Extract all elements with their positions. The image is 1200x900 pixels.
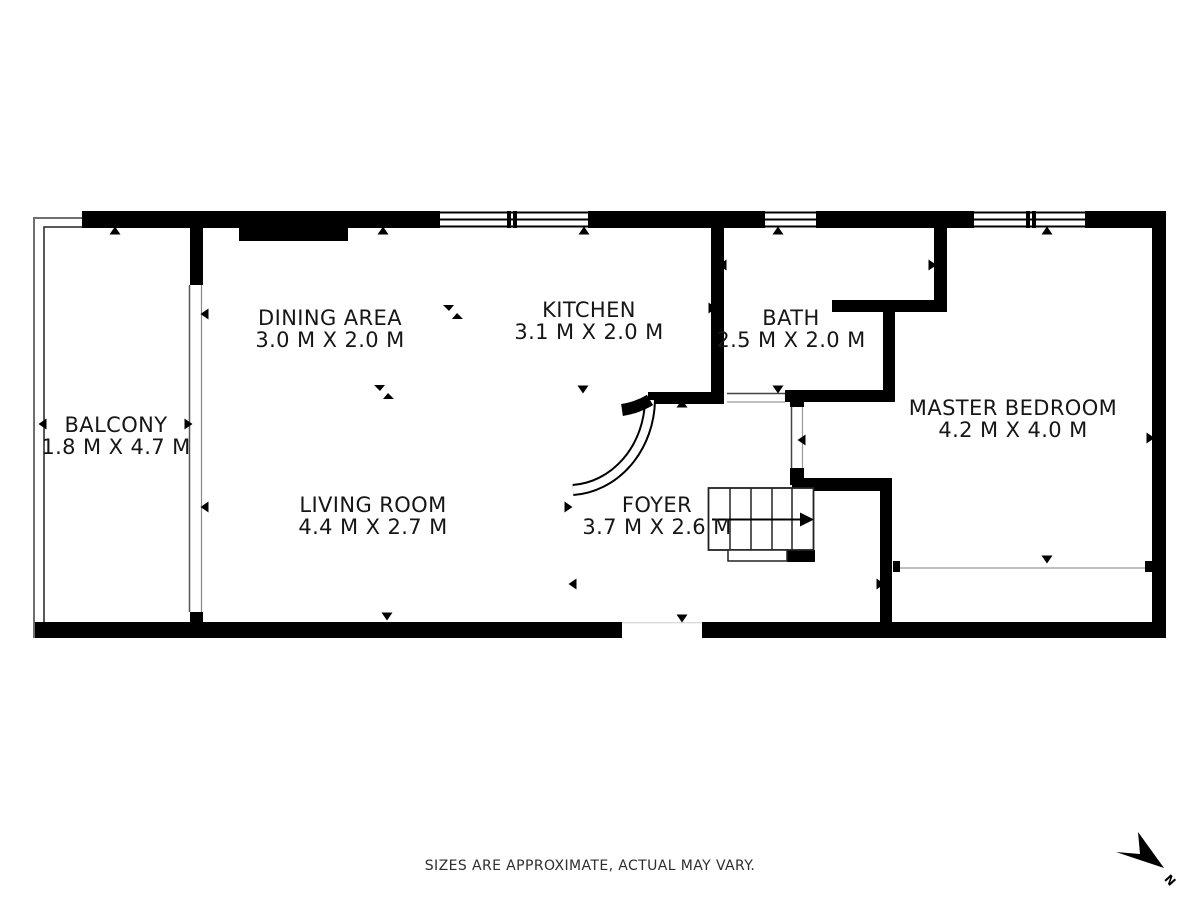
window-master-bedroom <box>969 211 1090 228</box>
dimension-arrow <box>569 579 577 590</box>
wall <box>239 228 348 241</box>
door-swing-arc <box>573 400 650 490</box>
room-name: MASTER BEDROOM <box>909 397 1117 419</box>
room-dims: 1.8 M X 4.7 M <box>41 436 190 458</box>
wall <box>592 211 763 228</box>
door-leaf <box>622 400 650 410</box>
floor-plan: N BALCONY 1.8 M X 4.7 M DINING AREA 3.0 … <box>0 0 1200 900</box>
dimension-arrow <box>798 435 806 446</box>
window-kitchen <box>435 211 593 228</box>
room-name: BALCONY <box>41 414 190 436</box>
double-dimension-arrow <box>443 305 463 319</box>
room-dims: 3.1 M X 2.0 M <box>514 321 663 343</box>
bath-door-opening <box>727 394 785 403</box>
wall <box>880 478 892 622</box>
room-dims: 4.2 M X 4.0 M <box>909 419 1117 441</box>
wall <box>893 561 900 572</box>
dimension-arrow <box>565 502 573 513</box>
room-name: KITCHEN <box>514 299 663 321</box>
dimension-arrow <box>578 386 589 394</box>
room-name: FOYER <box>582 494 731 516</box>
wall <box>190 612 203 622</box>
dimension-arrow <box>677 615 688 623</box>
wall <box>1145 561 1152 572</box>
wall <box>82 211 437 228</box>
dimension-arrow <box>1042 556 1053 564</box>
room-label-bath: BATH 2.5 M X 2.0 M <box>716 307 865 351</box>
room-label-dining-area: DINING AREA 3.0 M X 2.0 M <box>255 307 404 351</box>
dimension-arrow <box>773 386 784 394</box>
north-arrow-icon: N <box>1116 832 1179 889</box>
room-dims: 2.5 M X 2.0 M <box>716 329 865 351</box>
north-label: N <box>1161 872 1178 889</box>
dimension-arrow <box>382 613 393 621</box>
wall <box>190 228 203 285</box>
room-label-kitchen: KITCHEN 3.1 M X 2.0 M <box>514 299 663 343</box>
room-name: BATH <box>716 307 865 329</box>
room-dims: 3.0 M X 2.0 M <box>255 329 404 351</box>
double-dimension-arrow <box>374 385 394 399</box>
room-label-living-room: LIVING ROOM 4.4 M X 2.7 M <box>298 494 447 538</box>
window-bath <box>760 211 821 228</box>
room-dims: 4.4 M X 2.7 M <box>298 516 447 538</box>
room-name: DINING AREA <box>255 307 404 329</box>
stair-landing <box>728 550 787 561</box>
room-label-balcony: BALCONY 1.8 M X 4.7 M <box>41 414 190 458</box>
wall <box>883 300 895 400</box>
wall <box>787 550 815 562</box>
wall <box>33 622 622 638</box>
wall <box>648 392 724 404</box>
master-bedroom-door-opening <box>792 407 803 468</box>
wall <box>1152 211 1166 638</box>
wall <box>702 622 1166 638</box>
room-label-master-bedroom: MASTER BEDROOM 4.2 M X 4.0 M <box>909 397 1117 441</box>
wall <box>934 228 947 310</box>
wall <box>790 392 804 407</box>
room-label-foyer: FOYER 3.7 M X 2.6 M <box>582 494 731 538</box>
disclaimer-text: SIZES ARE APPROXIMATE, ACTUAL MAY VARY. <box>425 858 755 874</box>
room-name: LIVING ROOM <box>298 494 447 516</box>
wall <box>820 211 972 228</box>
room-dims: 3.7 M X 2.6 M <box>582 516 731 538</box>
windows <box>435 211 1090 228</box>
